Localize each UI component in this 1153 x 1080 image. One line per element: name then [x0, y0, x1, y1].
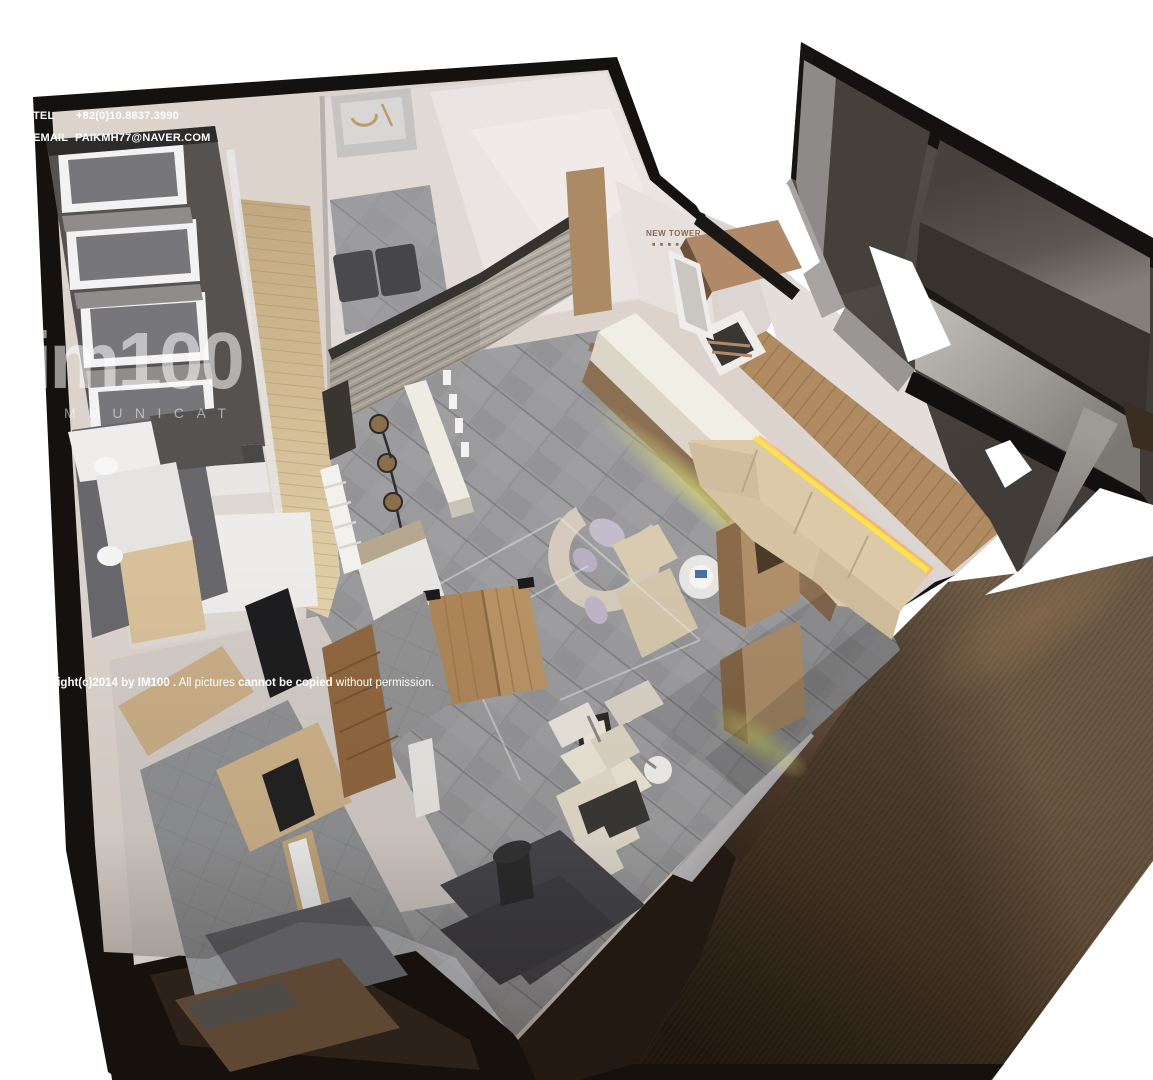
svg-text:MMUNICAT: MMUNICAT [64, 405, 238, 421]
svg-text:Copyright(c)2014 by IM100 . Al: Copyright(c)2014 by IM100 . All pictures… [24, 677, 434, 689]
svg-text:+82(0)10.8837.3990: +82(0)10.8837.3990 [76, 110, 179, 122]
svg-text:NEW TOWER: NEW TOWER [646, 229, 701, 238]
svg-text:im100: im100 [30, 316, 242, 405]
svg-text:PAIKMH77@NAVER.COM: PAIKMH77@NAVER.COM [75, 132, 211, 144]
svg-text:TEL: TEL [33, 110, 54, 122]
svg-text:EMAIL: EMAIL [33, 132, 68, 144]
